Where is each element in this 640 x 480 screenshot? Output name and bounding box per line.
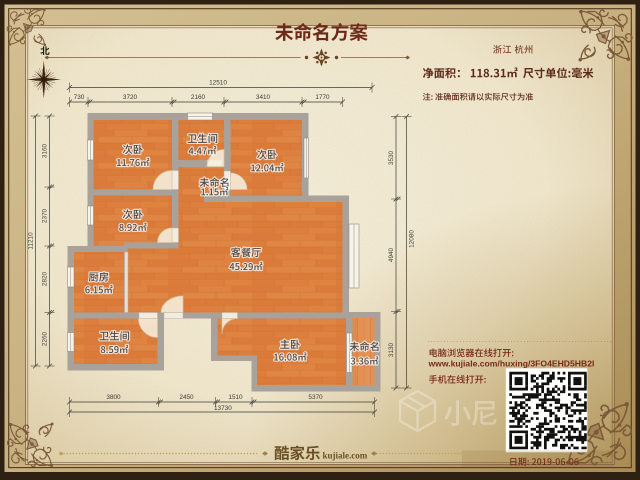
- svg-text:4940: 4940: [388, 247, 395, 262]
- svg-text:12080: 12080: [409, 230, 416, 248]
- svg-text:3160: 3160: [42, 143, 49, 158]
- svg-text:2370: 2370: [42, 208, 49, 223]
- svg-text:2820: 2820: [42, 271, 49, 286]
- svg-text:3800: 3800: [106, 394, 121, 401]
- svg-text:2450: 2450: [179, 394, 194, 401]
- svg-text:3130: 3130: [388, 342, 395, 357]
- svg-text:1770: 1770: [315, 94, 330, 101]
- svg-text:1510: 1510: [228, 394, 243, 401]
- svg-text:www.kujiale.com/huxing/3FO4EHD: www.kujiale.com/huxing/3FO4EHD5HB2I: [428, 358, 595, 368]
- svg-text:11210: 11210: [28, 232, 35, 250]
- svg-text:2260: 2260: [42, 331, 49, 346]
- svg-text:13730: 13730: [214, 405, 232, 412]
- svg-text:12510: 12510: [209, 80, 227, 87]
- svg-text:2160: 2160: [191, 94, 206, 101]
- svg-text:730: 730: [74, 94, 85, 101]
- svg-text:3530: 3530: [388, 150, 395, 165]
- svg-text:3720: 3720: [123, 94, 138, 101]
- svg-text:3410: 3410: [256, 94, 271, 101]
- svg-text:5370: 5370: [308, 394, 323, 401]
- svg-text:kujiale.com: kujiale.com: [323, 451, 368, 461]
